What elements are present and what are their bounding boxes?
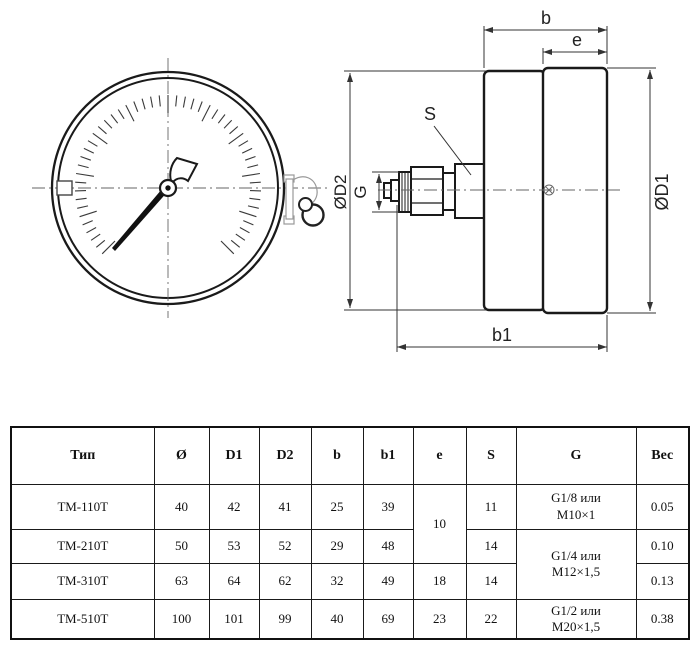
col-header-b: b [311,427,363,484]
seal-ring-small [299,198,312,211]
cell-d2: 62 [259,563,311,599]
cell-e: 18 [413,563,466,599]
rim-stop-pin [57,181,72,195]
col-header-s: S [466,427,516,484]
cell-weight: 0.38 [636,599,689,639]
cell-b1: 48 [363,529,413,563]
cell-type: ТМ-210Т [11,529,154,563]
dimension-label-b: b [541,8,551,28]
cell-g: G1/2 или М20×1,5 [516,599,636,639]
cell-dia: 40 [154,484,209,529]
cell-b1: 39 [363,484,413,529]
cell-dia: 100 [154,599,209,639]
cell-d1: 53 [209,529,259,563]
back-connection-detail [284,175,324,226]
hex-nut [411,167,443,215]
col-header-b1: b1 [363,427,413,484]
col-header-type: Тип [11,427,154,484]
cell-weight: 0.13 [636,563,689,599]
gauge-side-view: b e S ØD2 G ØD1 b1 [331,8,672,352]
col-header-d1: D1 [209,427,259,484]
cell-e: 23 [413,599,466,639]
cell-s: 14 [466,563,516,599]
cell-b: 40 [311,599,363,639]
case-body [484,71,545,310]
dimension-label-s: S [424,104,436,124]
cell-weight: 0.05 [636,484,689,529]
cell-d1: 64 [209,563,259,599]
gauge-datasheet-page: b e S ØD2 G ØD1 b1 Тип Ø D1 D2 b b1 e S [0,0,700,648]
col-header-g: G [516,427,636,484]
connection-boss [455,164,486,218]
cell-b: 32 [311,563,363,599]
cell-dia: 63 [154,563,209,599]
gauge-technical-drawing: b e S ØD2 G ØD1 b1 [0,0,700,424]
cell-b: 25 [311,484,363,529]
cell-d2: 52 [259,529,311,563]
cell-e-merged: 10 [413,484,466,563]
cell-b1: 49 [363,563,413,599]
cell-d1: 42 [209,484,259,529]
col-header-dia: Ø [154,427,209,484]
cell-type: ТМ-310Т [11,563,154,599]
process-connection [384,164,486,218]
cell-g-merged: G1/4 или М12×1,5 [516,529,636,599]
cell-b1: 69 [363,599,413,639]
col-header-weight: Вес [636,427,689,484]
needle-hub-pin [165,185,170,190]
dimension-label-d2: ØD2 [331,175,350,210]
cell-d2: 99 [259,599,311,639]
col-header-d2: D2 [259,427,311,484]
cell-b: 29 [311,529,363,563]
cell-s: 11 [466,484,516,529]
dimension-label-e: e [572,30,582,50]
dimension-label-d1: ØD1 [652,173,672,210]
cell-s: 22 [466,599,516,639]
table-row: ТМ-210Т 50 53 52 29 48 14 G1/4 или М12×1… [11,529,689,563]
cell-d1: 101 [209,599,259,639]
gauge-front-view [32,58,328,318]
cell-s: 14 [466,529,516,563]
cell-type: ТМ-510Т [11,599,154,639]
dimension-label-g: G [351,185,370,198]
table-row: ТМ-510Т 100 101 99 40 69 23 22 G1/2 или … [11,599,689,639]
spec-table: Тип Ø D1 D2 b b1 e S G Вес ТМ-110Т 40 42… [10,426,690,640]
cell-type: ТМ-110Т [11,484,154,529]
dimension-label-b1: b1 [492,325,512,345]
col-header-e: e [413,427,466,484]
table-header-row: Тип Ø D1 D2 b b1 e S G Вес [11,427,689,484]
cell-g: G1/8 или М10×1 [516,484,636,529]
table-row: ТМ-110Т 40 42 41 25 39 10 11 G1/8 или М1… [11,484,689,529]
cell-weight: 0.10 [636,529,689,563]
cell-d2: 41 [259,484,311,529]
cell-dia: 50 [154,529,209,563]
